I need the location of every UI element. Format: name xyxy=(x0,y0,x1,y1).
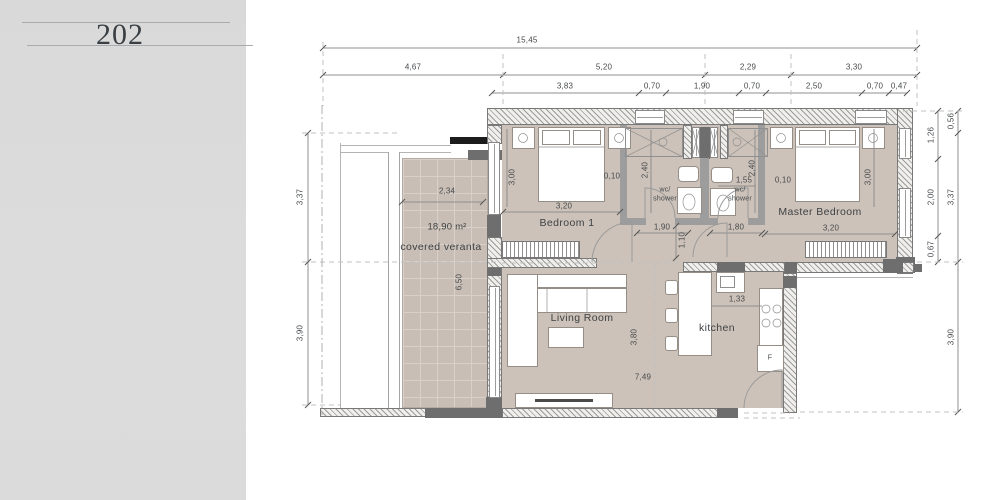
dim-right-outer-3: 3,90 xyxy=(947,329,956,345)
dim-bedroom1-depth: 3,00 xyxy=(508,169,517,185)
dim-right-inner-2: 2,00 xyxy=(927,189,936,205)
dim-top3-3: 1,90 xyxy=(694,82,710,91)
room-label-living: Living Room xyxy=(551,312,614,324)
dim-right-inner-1: 1,26 xyxy=(927,127,936,143)
room-label-master: Master Bedroom xyxy=(778,206,861,218)
dim-wc2-depth: 2,40 xyxy=(748,160,757,176)
plan-linework xyxy=(0,0,1000,500)
dim-wc1-depth: 2,40 xyxy=(641,162,650,178)
dim-hall-width: 1,10 xyxy=(678,232,687,248)
dim-top3-7: 0,47 xyxy=(891,82,907,91)
room-label-wc1-line2: shower xyxy=(653,196,677,203)
room-label-kitchen: kitchen xyxy=(699,322,735,334)
dim-living-depth: 3,80 xyxy=(630,329,639,345)
dim-right-outer-2: 3,37 xyxy=(947,189,956,205)
veranda-area-label: 18,90 m² xyxy=(427,222,466,233)
dim-overall-width: 15,45 xyxy=(516,36,537,45)
dim-hall-right: 1,80 xyxy=(728,223,744,232)
dim-bedroom1-offset: 0,10 xyxy=(604,172,620,181)
dim-living-width: 7,49 xyxy=(635,373,651,382)
dim-hall-left: 1,90 xyxy=(654,223,670,232)
room-label-bedroom1: Bedroom 1 xyxy=(540,217,595,229)
dim-right-outer-1: 0,56 xyxy=(947,113,956,129)
dim-top2-2: 5,20 xyxy=(596,63,612,72)
dim-right-inner-3: 0,67 xyxy=(927,241,936,257)
room-label-wc2-line1: wc/ xyxy=(734,187,745,194)
floorplan-page: 202 xyxy=(0,0,1000,500)
dim-top3-6: 0,70 xyxy=(867,82,883,91)
dim-master-depth: 3,00 xyxy=(864,169,873,185)
fridge-label: F xyxy=(768,355,772,362)
room-label-wc2-line2: shower xyxy=(728,196,752,203)
dim-kitchen-gap: 1,33 xyxy=(729,295,745,304)
dim-top3-4: 0,70 xyxy=(744,82,760,91)
room-label-veranda: covered veranta xyxy=(400,241,481,253)
dim-veranda-depth: 6,50 xyxy=(455,274,464,290)
dim-top3-2: 0,70 xyxy=(644,82,660,91)
dim-bedroom1-width: 3,20 xyxy=(556,202,572,211)
dim-veranda-width: 2,34 xyxy=(439,187,455,196)
dim-wc2-width: 1,55 xyxy=(736,176,752,185)
dim-top2-1: 4,67 xyxy=(405,63,421,72)
dim-top3-5: 2,50 xyxy=(806,82,822,91)
dim-top2-4: 3,30 xyxy=(846,63,862,72)
dim-master-width: 3,20 xyxy=(823,224,839,233)
dim-top3-1: 3,83 xyxy=(557,82,573,91)
dim-master-offset: 0,10 xyxy=(775,176,791,185)
room-label-wc1-line1: wc/ xyxy=(659,187,670,194)
dim-left-upper: 3,37 xyxy=(296,189,305,205)
dim-left-lower: 3,90 xyxy=(296,325,305,341)
dim-top2-3: 2,29 xyxy=(740,63,756,72)
